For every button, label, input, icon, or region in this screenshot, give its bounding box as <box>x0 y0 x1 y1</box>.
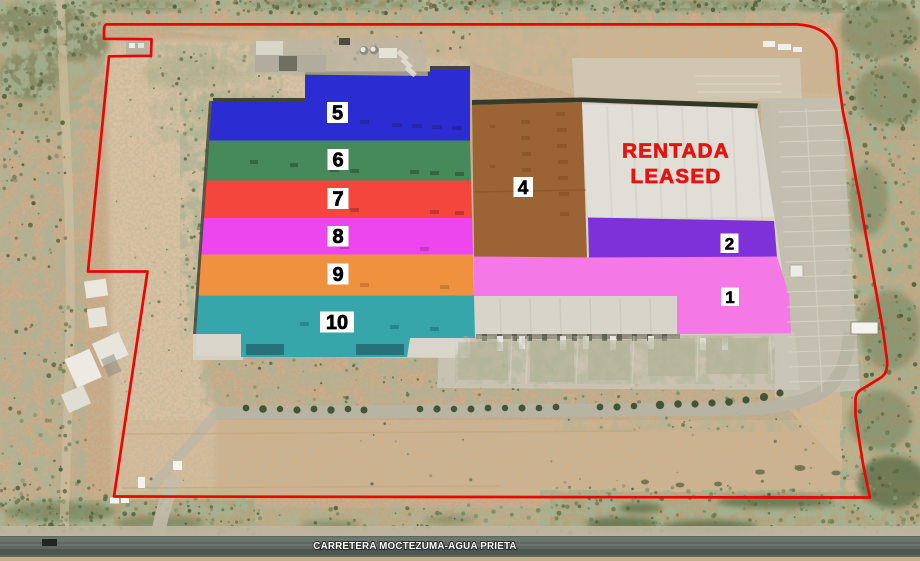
svg-text:6: 6 <box>332 150 343 172</box>
svg-text:CARRETERA MOCTEZUMA-AGUA PRIET: CARRETERA MOCTEZUMA-AGUA PRIETA <box>313 541 516 552</box>
svg-text:8: 8 <box>332 226 343 248</box>
svg-text:10: 10 <box>326 312 348 334</box>
svg-text:4: 4 <box>518 178 529 199</box>
svg-text:LEASED: LEASED <box>631 165 722 188</box>
svg-text:9: 9 <box>332 264 343 286</box>
svg-text:5: 5 <box>332 103 343 125</box>
svg-text:2: 2 <box>725 235 734 254</box>
svg-text:RENTADA: RENTADA <box>622 140 730 163</box>
svg-text:7: 7 <box>332 189 343 211</box>
svg-text:1: 1 <box>725 288 734 307</box>
